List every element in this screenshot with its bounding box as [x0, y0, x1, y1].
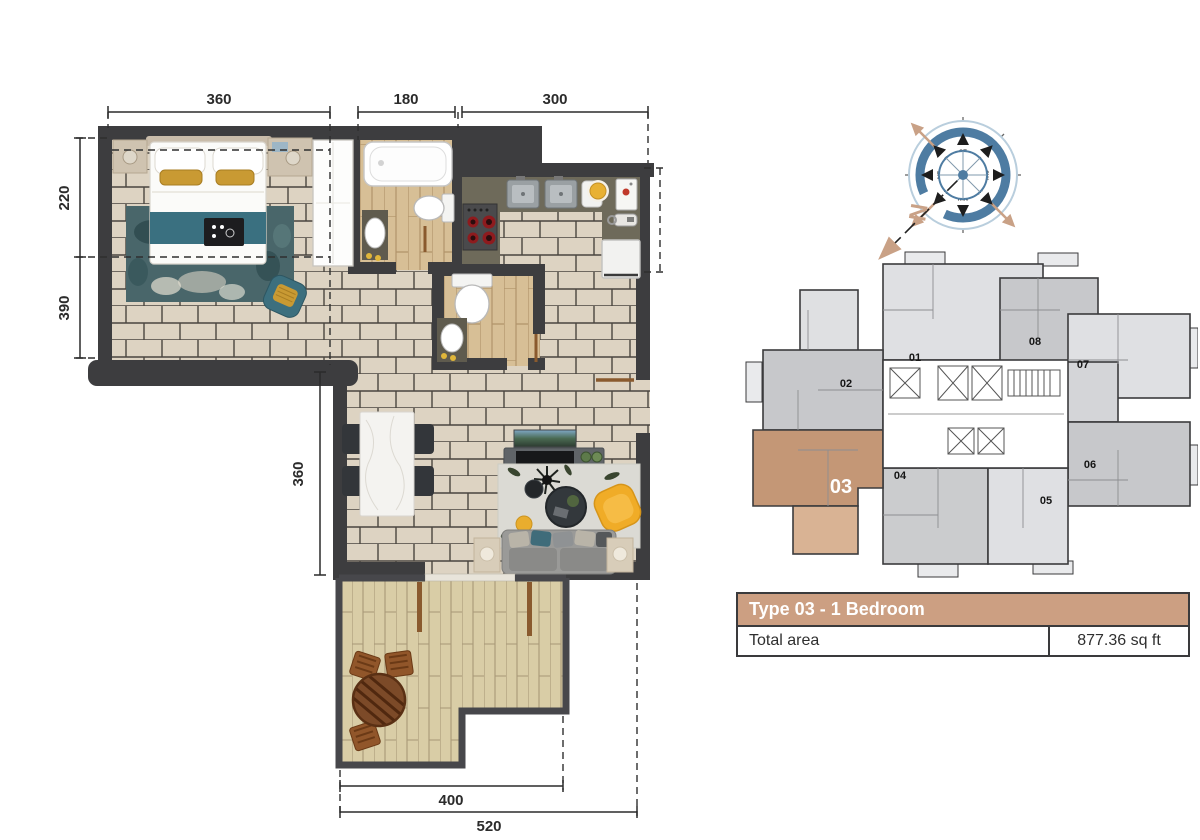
kitchen-plate	[587, 180, 609, 202]
unit-label-03: 03	[830, 476, 852, 498]
wardrobe	[313, 140, 353, 266]
side-table-right	[607, 538, 633, 572]
water-heater	[616, 179, 637, 210]
unit-floor-plan: 360 180 300 220 390 360 400 520	[0, 0, 720, 840]
sink-1	[362, 210, 388, 261]
coffee-table	[546, 487, 586, 527]
table-header: Type 03 - 1 Bedroom	[738, 594, 1188, 627]
keyplan-unit-03-balcony	[793, 506, 858, 554]
tv-screen	[514, 430, 576, 447]
toilet-2	[452, 274, 492, 323]
total-area-value: 877.36 sq ft	[1048, 627, 1188, 655]
north-label: N	[903, 201, 933, 223]
keyplan-unit-04	[883, 468, 988, 564]
stove	[463, 204, 497, 250]
unit-label-05: 05	[1040, 495, 1052, 507]
ottoman	[525, 480, 543, 498]
terrace-threshold	[425, 574, 515, 581]
unit-info-table: Type 03 - 1 Bedroom Total area 877.36 sq…	[736, 592, 1190, 657]
toilet-1	[414, 194, 454, 222]
dim-living-height: 360	[290, 461, 307, 486]
compass-center	[958, 170, 968, 180]
dim-bedroom-width: 360	[206, 91, 231, 108]
unit-label-04: 04	[894, 470, 907, 482]
dim-left-lower: 390	[56, 295, 73, 320]
keyplan-unit-05	[988, 468, 1068, 564]
unit-label-02: 02	[840, 378, 852, 390]
dim-overall-width: 520	[476, 818, 501, 835]
dim-terrace-width: 400	[438, 792, 463, 809]
side-table-left	[474, 538, 500, 572]
unit-label-08: 08	[1029, 336, 1041, 348]
sofa	[502, 530, 616, 574]
fridge	[602, 240, 640, 278]
dim-kitchen-width: 300	[542, 91, 567, 108]
keyplan-block	[800, 290, 858, 352]
total-area-label: Total area	[738, 627, 1048, 655]
nightstand-right	[268, 138, 312, 176]
bathtub	[364, 142, 452, 186]
terrace-planter	[417, 582, 422, 632]
unit-label-01: 01	[909, 352, 921, 364]
nightstand-left	[113, 140, 147, 173]
dim-left-upper: 220	[56, 185, 73, 210]
keyplan-unit-03	[753, 430, 883, 506]
terrace-stool	[384, 650, 413, 677]
table-row: Total area 877.36 sq ft	[738, 627, 1188, 655]
unit-label-06: 06	[1084, 459, 1096, 471]
sink-2	[437, 318, 467, 362]
bed	[146, 136, 272, 264]
terrace-planter	[527, 582, 532, 636]
floorplan-page: 360 180 300 220 390 360 400 520 SE S	[0, 0, 1200, 840]
dim-bath-width: 180	[393, 91, 418, 108]
building-key-plan: 01 02 03 04 05 06 07 08	[738, 250, 1198, 590]
unit-label-07: 07	[1077, 359, 1089, 371]
